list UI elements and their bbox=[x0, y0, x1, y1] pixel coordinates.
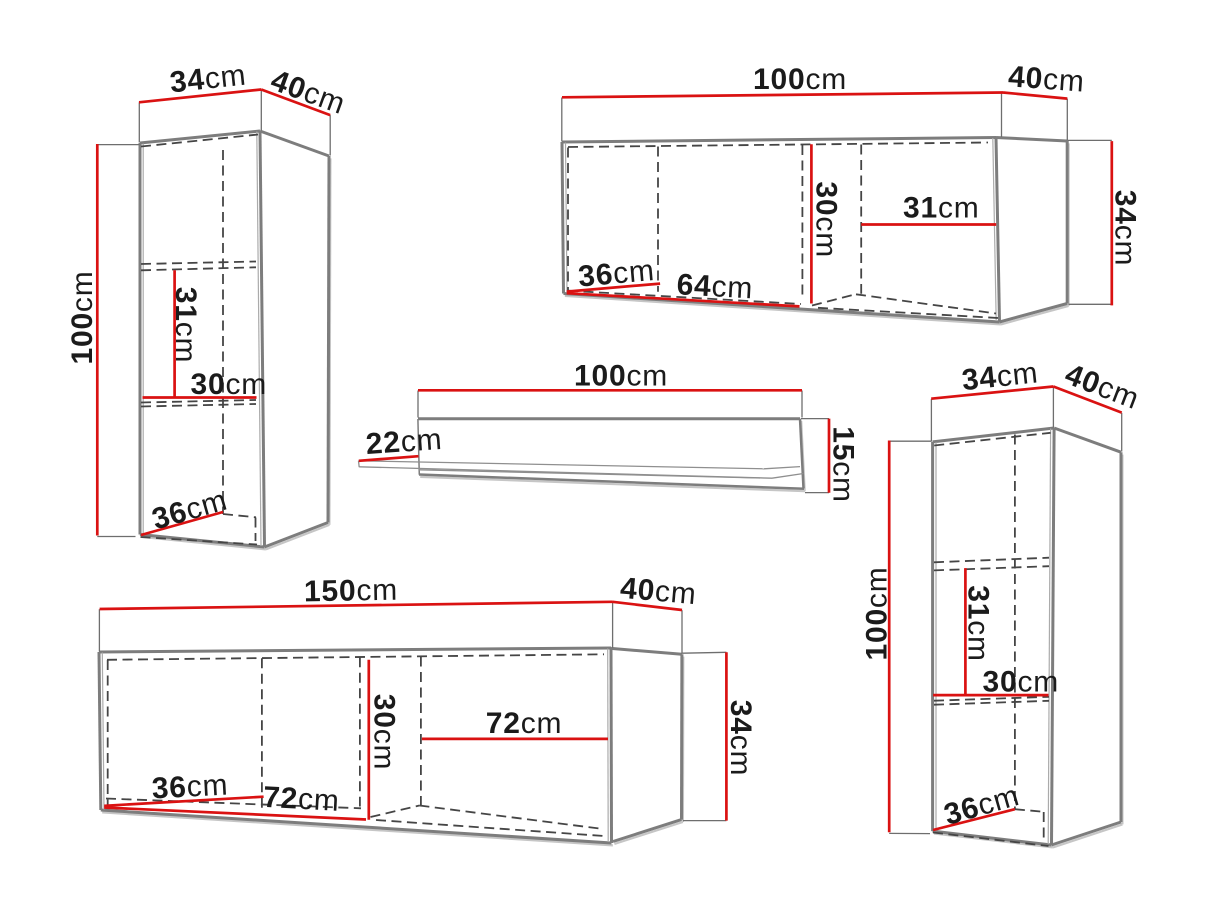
svg-text:100cm: 100cm bbox=[574, 360, 668, 393]
svg-text:36cm: 36cm bbox=[151, 769, 229, 806]
svg-text:31cm: 31cm bbox=[903, 192, 980, 225]
svg-text:100cm: 100cm bbox=[66, 270, 99, 364]
svg-text:31cm: 31cm bbox=[961, 585, 994, 662]
svg-text:72cm: 72cm bbox=[486, 707, 563, 740]
svg-text:15cm: 15cm bbox=[827, 426, 860, 503]
svg-text:40cm: 40cm bbox=[267, 64, 350, 121]
svg-text:40cm: 40cm bbox=[619, 572, 698, 612]
svg-text:34cm: 34cm bbox=[960, 356, 1040, 397]
svg-text:31cm: 31cm bbox=[169, 287, 202, 364]
svg-text:30cm: 30cm bbox=[191, 368, 268, 401]
svg-text:36cm: 36cm bbox=[940, 779, 1023, 832]
svg-text:22cm: 22cm bbox=[365, 423, 444, 461]
svg-text:72cm: 72cm bbox=[262, 781, 340, 818]
svg-text:30cm: 30cm bbox=[983, 666, 1060, 699]
svg-text:36cm: 36cm bbox=[148, 484, 231, 537]
svg-text:30cm: 30cm bbox=[368, 694, 401, 771]
svg-text:100cm: 100cm bbox=[861, 566, 894, 660]
svg-text:34cm: 34cm bbox=[724, 700, 757, 777]
svg-text:64cm: 64cm bbox=[676, 268, 754, 305]
svg-text:40cm: 40cm bbox=[1060, 358, 1143, 416]
svg-text:150cm: 150cm bbox=[304, 574, 399, 609]
svg-text:34cm: 34cm bbox=[1109, 190, 1142, 267]
svg-text:30cm: 30cm bbox=[809, 181, 842, 258]
svg-text:40cm: 40cm bbox=[1007, 60, 1086, 98]
svg-text:36cm: 36cm bbox=[577, 254, 656, 294]
svg-text:100cm: 100cm bbox=[753, 63, 847, 96]
